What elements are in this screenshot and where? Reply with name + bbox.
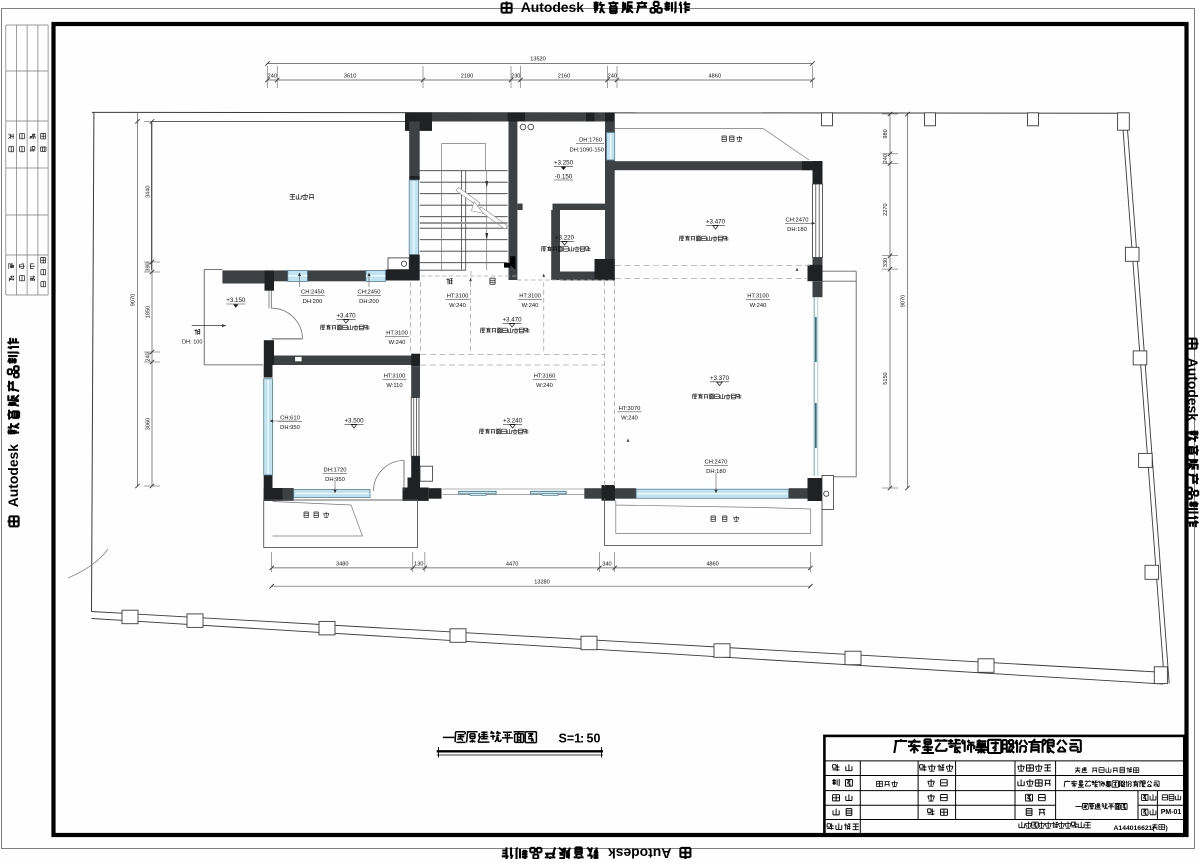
svg-text:CH:610: CH:610 xyxy=(280,416,300,422)
svg-text:+3.470: +3.470 xyxy=(706,219,726,226)
svg-text:W:240: W:240 xyxy=(750,303,767,309)
svg-text:Autodesk: Autodesk xyxy=(1185,358,1200,422)
svg-text:4470: 4470 xyxy=(506,561,518,567)
svg-text:W:110: W:110 xyxy=(386,383,402,389)
svg-text:50: 50 xyxy=(587,731,601,745)
svg-text:240: 240 xyxy=(146,352,152,361)
svg-text:HT:3100: HT:3100 xyxy=(747,294,769,300)
svg-text:3440: 3440 xyxy=(146,185,152,197)
svg-text:CH:2450: CH:2450 xyxy=(301,290,324,296)
svg-text:DH: 100: DH: 100 xyxy=(182,340,203,346)
svg-text:PM-01: PM-01 xyxy=(1161,809,1182,816)
svg-text:3480: 3480 xyxy=(336,561,348,567)
svg-text:S=1: S=1 xyxy=(559,731,582,745)
svg-text:130: 130 xyxy=(414,561,423,567)
svg-text:W:240: W:240 xyxy=(389,340,406,346)
svg-text:DH:180: DH:180 xyxy=(787,227,807,233)
svg-text:9070: 9070 xyxy=(131,294,137,306)
svg-text:): ) xyxy=(1166,825,1168,832)
svg-text:340: 340 xyxy=(602,561,611,567)
svg-text:13520: 13520 xyxy=(530,57,546,63)
svg-text:+3.150: +3.150 xyxy=(226,297,246,304)
svg-text:HT:3100: HT:3100 xyxy=(447,294,469,300)
svg-text:390: 390 xyxy=(146,262,152,271)
svg-text:230: 230 xyxy=(511,74,520,80)
svg-text:+3.250: +3.250 xyxy=(554,160,574,167)
svg-text:240: 240 xyxy=(608,74,617,80)
svg-text:3610: 3610 xyxy=(344,74,356,80)
svg-text:DH:1760: DH:1760 xyxy=(579,138,602,144)
svg-text:240: 240 xyxy=(268,74,277,80)
svg-text:HT:3100: HT:3100 xyxy=(519,294,541,300)
svg-text:A144016621(: A144016621( xyxy=(1114,825,1156,832)
svg-text:DH:200: DH:200 xyxy=(303,299,323,305)
svg-text:5150: 5150 xyxy=(883,372,889,384)
svg-text:4860: 4860 xyxy=(709,74,721,80)
svg-text:CH:2470: CH:2470 xyxy=(705,460,728,466)
svg-text:9070: 9070 xyxy=(901,295,907,307)
svg-text:HT:3100: HT:3100 xyxy=(386,331,408,337)
svg-text:DH:950: DH:950 xyxy=(280,425,300,431)
svg-text:Autodesk: Autodesk xyxy=(608,845,672,859)
svg-text:+3.470: +3.470 xyxy=(502,317,522,324)
svg-text:980: 980 xyxy=(883,129,889,138)
svg-text:+3.500: +3.500 xyxy=(344,418,364,425)
svg-text:Autodesk: Autodesk xyxy=(5,444,21,508)
svg-text:W:240: W:240 xyxy=(621,416,638,422)
svg-text:W:240: W:240 xyxy=(522,303,539,309)
svg-text:2180: 2180 xyxy=(461,74,473,80)
svg-text:1850: 1850 xyxy=(146,306,152,318)
svg-text:+3.240: +3.240 xyxy=(503,418,523,425)
svg-text:Autodesk: Autodesk xyxy=(521,0,585,15)
svg-text:+3.370: +3.370 xyxy=(710,375,730,382)
svg-text:2160: 2160 xyxy=(558,74,570,80)
svg-text:13280: 13280 xyxy=(534,580,550,586)
svg-text:-0.150: -0.150 xyxy=(555,174,573,181)
svg-text:3060: 3060 xyxy=(146,418,152,430)
svg-text:HT:3160: HT:3160 xyxy=(534,374,556,380)
svg-text:W:240: W:240 xyxy=(536,383,553,389)
svg-text:330: 330 xyxy=(883,258,889,267)
svg-text:CH:2470: CH:2470 xyxy=(786,218,809,224)
svg-text:+3.220: +3.220 xyxy=(555,235,575,242)
svg-text:W:240: W:240 xyxy=(449,303,466,309)
svg-text:DH:1720: DH:1720 xyxy=(324,468,347,474)
svg-text:240: 240 xyxy=(883,154,889,163)
svg-text:2270: 2270 xyxy=(883,203,889,215)
svg-text:HT:3070: HT:3070 xyxy=(619,406,641,412)
svg-text:CH:2450: CH:2450 xyxy=(358,290,381,296)
svg-text::: : xyxy=(580,731,584,745)
svg-text:DH:1090-150: DH:1090-150 xyxy=(570,148,604,154)
svg-text:DH:200: DH:200 xyxy=(359,299,379,305)
svg-text:4860: 4860 xyxy=(706,561,718,567)
svg-text:HT:3100: HT:3100 xyxy=(384,374,406,380)
svg-text:+3.470: +3.470 xyxy=(336,313,356,320)
